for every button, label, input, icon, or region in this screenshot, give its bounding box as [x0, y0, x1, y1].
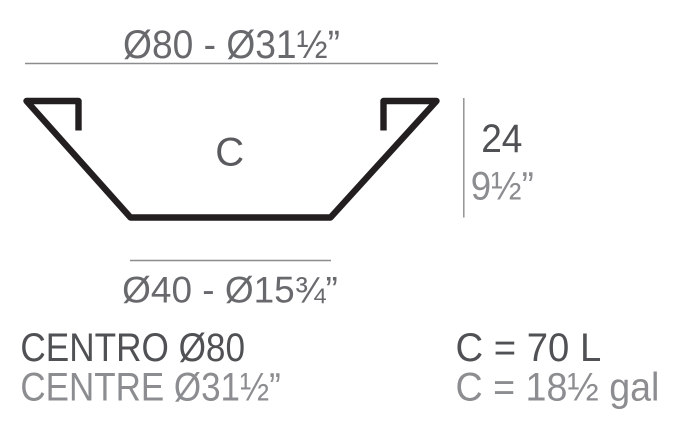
svg-text:CENTRO Ø80: CENTRO Ø80 — [20, 326, 245, 370]
svg-text:CENTRE Ø31½”: CENTRE Ø31½” — [20, 366, 280, 410]
svg-text:Ø80 - Ø31½”: Ø80 - Ø31½” — [123, 23, 340, 67]
svg-text:C = 18½ gal: C = 18½ gal — [456, 366, 660, 410]
svg-text:C = 70 L: C = 70 L — [456, 326, 602, 370]
svg-text:Ø40 - Ø15¾”: Ø40 - Ø15¾” — [122, 269, 338, 311]
svg-text:C: C — [215, 131, 244, 175]
svg-text:24: 24 — [481, 117, 522, 161]
svg-text:9½”: 9½” — [471, 165, 534, 209]
